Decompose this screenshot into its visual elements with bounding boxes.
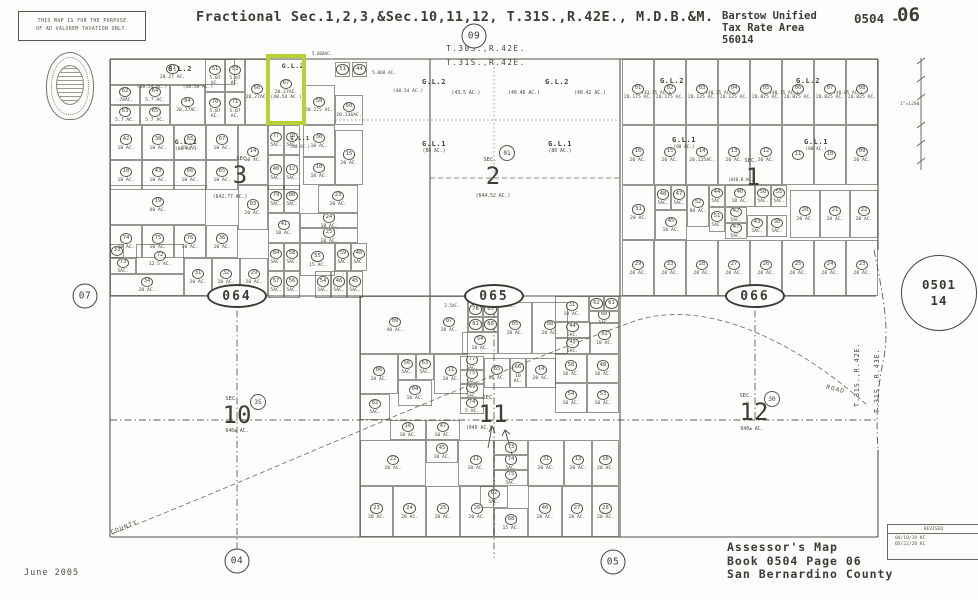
parcel-number: 56 (401, 359, 414, 369)
map-note: G.L.1 (672, 137, 696, 144)
parcel-cell: 465AC. (331, 271, 347, 298)
parcel-cell: 495AC. (460, 384, 484, 398)
parcel-number: 77 (466, 356, 479, 365)
parcel-cell: 1520 AC. (654, 125, 686, 185)
parcel-number: 77 (270, 132, 283, 142)
parcel-cell: 2520 AC. (426, 486, 460, 537)
parcel-cell: 0520 AC. (498, 302, 532, 354)
parcel-number: 53 (229, 65, 242, 75)
parcel-cell: 805AC. (284, 185, 300, 213)
parcel-cell: 1940 AC. (110, 185, 206, 225)
parcel-number: 55 (311, 251, 324, 261)
parcel-cell: 2120 AC. (820, 190, 850, 238)
parcel-acreage: 20 AC. (630, 271, 647, 276)
parcel-acreage: 20 AC. (371, 377, 388, 382)
parcel-number: 44 (353, 64, 366, 74)
parcel-acreage: 20 AC. (538, 466, 555, 471)
parcel-cell: 3420 AC. (110, 274, 184, 296)
parcel-number: 74 (466, 398, 479, 408)
parcel-acreage: 40 AC. (387, 328, 404, 333)
parcel-number: 66 (512, 362, 525, 372)
map-note: G.L.1 (548, 141, 572, 148)
parcel-number: 60 (343, 102, 356, 112)
map-note: 2.5AC. (444, 304, 459, 308)
road-marker-09: 09 (462, 24, 487, 49)
parcel-cell: 62.78AC. (110, 85, 140, 105)
parcel-number: 75 (505, 470, 518, 480)
parcel-number: 82 (369, 399, 382, 409)
parcel-acreage: 5AC. (286, 176, 297, 181)
parcel-cell: 7212.5 AC. (136, 244, 184, 274)
map-date: June 2005 (24, 568, 79, 578)
parcel-number: 24 (323, 213, 336, 223)
map-note: (40.25 AC.) (705, 92, 734, 96)
parcel-acreage: 10 AC. (489, 376, 506, 381)
parcel-number: 40 (734, 188, 747, 198)
revision-label: REVISED (888, 525, 978, 534)
map-note: G.L.2 (545, 79, 569, 86)
map-note: G.L.1 (175, 139, 198, 146)
parcel-cell: 435AC. (747, 215, 767, 237)
map-note: (40.05 AC.) (833, 92, 862, 96)
parcel-number: 58 (565, 360, 578, 370)
parcel-number: 81 (469, 319, 482, 329)
parcel-cell: 4510 AC. (426, 440, 458, 463)
parcel-number: 23 (370, 503, 383, 513)
parcel-number: 34 (141, 277, 154, 287)
road-marker-05: 05 (601, 550, 626, 575)
parcel-number: 51 (711, 211, 724, 221)
parcel-number: 45 (566, 338, 579, 348)
parcel-acreage: 5AC. (286, 260, 297, 265)
parcel-number: 42 (120, 134, 133, 144)
parcel-acreage: 80 AC. (690, 209, 707, 214)
parcel-acreage: 20 AC. (139, 288, 156, 293)
parcel-acreage: 10 AC. (563, 372, 580, 377)
parcel-number: 07 (443, 317, 456, 327)
section-numeral: 11 (479, 402, 508, 426)
parcel-cell: 4510 AC. (655, 210, 687, 240)
parcel-number: 45 (665, 217, 678, 227)
parcel-acreage: 20 AC. (385, 466, 402, 471)
road-marker-30: 30 (764, 391, 780, 407)
parcel-number: 83 (247, 199, 260, 209)
parcel-cell: 555AC. (771, 185, 787, 207)
parcel-number: 16 (402, 422, 415, 432)
parcel-cell: 2510 AC. (300, 228, 358, 243)
parcel-number: 36 (216, 233, 229, 243)
parcel-acreage: 5AC. (286, 288, 297, 293)
parcel-cell: 11 (782, 125, 814, 185)
revision-entry-2: 05/22/20 KC (895, 542, 978, 549)
parcel-number: 45 (349, 276, 362, 286)
parcel-cell: 2420 AC. (393, 486, 426, 537)
road-marker-064: 064 (207, 284, 267, 308)
parcel-number: 84 (270, 249, 283, 259)
parcel-cell: 61 (604, 296, 619, 311)
parcel-cell: 6710 AC. (206, 125, 238, 160)
parcel-cell: 825AC. (360, 394, 390, 420)
parcel-acreage: 5AC. (711, 223, 722, 228)
parcel-number: 15 (343, 149, 356, 159)
parcel-number: 40 (539, 503, 552, 513)
parcel-acreage: 20 AC. (758, 158, 775, 163)
parcel-number: 48 (657, 189, 670, 199)
road-marker-35: 35 (250, 394, 266, 410)
parcel-cell: 1010 AC. (303, 157, 335, 185)
section-numeral: 12 (740, 400, 769, 424)
parcel-number: 04 (409, 385, 422, 395)
parcel-cell: 795AC. (268, 185, 284, 213)
parcel-number: 29 (248, 269, 261, 279)
parcel-number: 48 (597, 360, 610, 370)
parcel-acreage: 5AC. (711, 199, 722, 204)
parcel-cell: 5410 AC. (555, 383, 587, 413)
parcel-number: 41 (278, 220, 291, 230)
parcel-cell: 535.07 AC. (225, 59, 245, 92)
map-note: 5.068 AC. (372, 72, 396, 76)
parcel-number: 27 (728, 260, 741, 270)
parcel-cell: 6020.136AC. (335, 95, 363, 125)
parcel-number: 65 (216, 167, 229, 177)
map-note: (644.52 AC.) (476, 195, 511, 200)
parcel-acreage: 5.7 AC. (115, 118, 135, 123)
parcel-cell: 2820 AC. (686, 240, 718, 296)
parcel-number: 57 (270, 276, 283, 286)
parcel-number: 28 (696, 260, 709, 270)
parcel-cell: 575AC. (268, 271, 284, 298)
parcel-cell: 2720 AC. (562, 486, 592, 537)
parcel-cell: 6610 AC. (510, 358, 526, 388)
parcel-acreage: 5AC. (751, 229, 762, 234)
parcel-cell: 5280 AC. (687, 185, 709, 227)
parcel-acreage: 10 AC. (118, 178, 135, 183)
parcel-acreage: 5AC. (730, 234, 741, 239)
parcel-number: 65 (149, 107, 162, 117)
parcel-acreage: 20 AC. (758, 271, 775, 276)
parcel-cell: 455AC. (347, 271, 363, 298)
parcel-number: 12 (286, 164, 299, 174)
parcel-number: 63 (119, 107, 132, 117)
parcel-cell: 2220 AC. (850, 190, 878, 238)
parcel-acreage: 20 AC. (630, 158, 647, 163)
parcel-cell: 1610 AC. (390, 420, 426, 440)
parcel-cell: 1320 AC. (564, 440, 592, 486)
parcel-number: 80 (286, 191, 299, 201)
parcel-acreage: 5AC. (337, 260, 348, 265)
parcel-cell: 2620 AC. (460, 486, 494, 537)
parcel-acreage: 20 AC. (190, 280, 207, 285)
parcel-acreage: 20 AC. (822, 271, 839, 276)
parcel-number: 27 (571, 503, 584, 513)
parcel-acreage: 20 AC. (662, 158, 679, 163)
parcel-number: 73 (117, 258, 130, 268)
parcel-number: 60 (598, 311, 611, 320)
parcel-number: 40 (270, 164, 283, 174)
parcel-number: 55 (773, 188, 786, 198)
parcel-acreage: 20 AC. (597, 466, 614, 471)
township-label-right-east: T.31S.,R.43E. (873, 348, 881, 413)
parcel-cell: 4210 AC. (110, 125, 142, 160)
map-note: (40.15 AC.) (769, 92, 798, 96)
parcel-acreage: 20 AC. (441, 328, 458, 333)
map-note: 640± AC. (225, 430, 248, 435)
parcel-number: 13 (572, 455, 585, 465)
district-name: Barstow Unified (722, 10, 817, 22)
map-note: (40.58 AC.) (183, 86, 213, 91)
county-seal (46, 52, 94, 120)
parcel-acreage: 20.27AC. (246, 95, 269, 100)
parcel-number: 65 (491, 365, 504, 375)
parcel-cell: 4110 AC. (268, 213, 300, 243)
parcel-acreage: 10 AC. (118, 146, 135, 151)
parcel-number: 11 (445, 366, 458, 376)
parcel-acreage: 10 AC. (150, 178, 167, 183)
parcel-number: 18 (120, 167, 133, 177)
parcel-acreage: 10 AC. (214, 178, 231, 183)
parcel-acreage: 20 AC. (662, 271, 679, 276)
parcel-cell: 2420 AC. (814, 240, 846, 296)
parcel-acreage: 5AC. (353, 260, 364, 265)
parcel-cell: 385AC. (767, 215, 787, 237)
parcel-acreage: 20.27AC. (176, 108, 199, 113)
parcel-number: 62 (590, 298, 603, 308)
assessor-map-sheet: THIS MAP IS FOR THE PURPOSE OF AD VALORE… (0, 0, 978, 600)
parcel-acreage: 5.07 AC. (226, 109, 244, 119)
parcel-number: 66 (251, 84, 264, 94)
parcel-acreage: 20 AC. (537, 515, 554, 520)
parcel-cell: 6815 AC. (494, 508, 528, 537)
parcel-number: 25 (323, 228, 336, 238)
parcel-cell: 1620 AC. (622, 125, 654, 185)
parcel-acreage: 20 AC. (341, 161, 358, 166)
scale-bar (917, 58, 925, 170)
parcel-number: 32 (220, 269, 233, 279)
parcel-cell: 845AC. (268, 243, 284, 271)
parcel-cell: 1420.125AC. (686, 125, 718, 185)
map-note: G.L.2 (796, 78, 820, 85)
parcel-number: 33 (111, 246, 124, 256)
parcel-cell: 1520 AC. (335, 130, 363, 185)
parcel-number: 48 (353, 249, 366, 259)
parcel-acreage: 10 AC. (564, 312, 581, 317)
parcel-number: 51 (209, 65, 222, 75)
parcel-number: 09 (389, 317, 402, 327)
parcel-cell: 735AC. (110, 258, 136, 274)
book-page-ref: 0504 - (854, 11, 899, 26)
parcel-acreage: 5.07 AC. (206, 109, 224, 119)
parcel-cell: 565AC. (398, 354, 416, 380)
parcel-number: 80 (484, 319, 497, 329)
parcel-acreage: 10 AC. (150, 146, 167, 151)
parcel-acreage: 20 AC. (854, 271, 871, 276)
parcel-number: 24 (824, 260, 837, 270)
road-marker-04: 04 (225, 549, 250, 574)
parcel-acreage: 20 AC. (533, 376, 550, 381)
parcel-number: 52 (692, 198, 705, 208)
map-note: (80 AC.) (805, 148, 826, 152)
parcel-cell: 775AC. (268, 125, 284, 155)
parcel-cell: 2320 AC. (360, 486, 393, 537)
parcel-cell: 73 (494, 440, 528, 455)
parcel-cell: 2820 AC. (592, 486, 619, 537)
tax-rate-area-code: 56014 (722, 34, 817, 46)
parcel-acreage: 20 AC. (630, 216, 647, 221)
parcel-acreage: 20.125AC. (689, 158, 714, 163)
parcel-acreage: 20 AC. (469, 515, 486, 520)
parcel-number: 76 (184, 233, 197, 243)
map-note: G.L.1 (290, 137, 310, 143)
assessor-map-footer: Assessor's Map Book 0504 Page 06 San Ber… (727, 541, 893, 582)
parcel-cell: 6620.27AC. (245, 59, 269, 125)
parcel-number: 51 (336, 64, 349, 74)
road-marker-065: 065 (464, 284, 524, 308)
parcel-number: 13 (728, 147, 741, 157)
parcel-number: 29 (632, 260, 645, 270)
map-note: 5.068AC. (312, 52, 332, 56)
map-note: (640 AC.) (466, 427, 492, 432)
parcel-number: 23 (332, 191, 345, 201)
parcel-cell: 3610 AC. (206, 225, 238, 258)
parcel-cell: 745AC. (494, 455, 528, 470)
parcel-cell: 475AC. (725, 223, 747, 239)
tax-rate-area-block: Barstow Unified Tax Rate Area 56014 (722, 10, 817, 46)
parcel-number: 43 (751, 218, 764, 228)
parcel-cell: 33 (110, 244, 124, 258)
parcel-cell: 3320 AC. (654, 240, 686, 296)
parcel-number: 61 (605, 298, 618, 308)
parcel-cell: 5820.275 AC. (303, 85, 335, 125)
parcel-cell: 655.7 AC. (140, 105, 170, 125)
parcel-number: 70 (209, 98, 222, 108)
parcel-number: 58 (313, 97, 326, 107)
parcel-number: 22 (387, 455, 400, 465)
parcel-acreage: 10 AC. (182, 178, 199, 183)
parcel-number: 75 (152, 233, 165, 243)
disclaimer-box: THIS MAP IS FOR THE PURPOSE OF AD VALORE… (18, 11, 146, 41)
parcel-number: 73 (505, 442, 518, 452)
map-note: (80 AC.) (290, 145, 310, 149)
parcel-acreage: 10 AC. (563, 401, 580, 406)
parcel-acreage: 20 AC. (790, 271, 807, 276)
map-note: (40.54 AC.) (393, 90, 423, 95)
parcel-cell: 1120 AC. (458, 440, 494, 486)
parcel-number: 22 (858, 206, 871, 216)
parcel-number: 38 (771, 218, 784, 228)
highlighted-parcel: 6720.27AC. (40.54 AC.) (269, 57, 303, 122)
township-label-right-west: T.31S.,R.42E. (853, 342, 861, 407)
parcel-acreage: 5AC. (401, 370, 412, 375)
parcel-number: 54 (474, 335, 487, 345)
parcel-number: 31 (632, 204, 645, 214)
parcel-acreage: 12.5 AC. (149, 262, 172, 267)
parcel-cell: 6510 AC. (484, 358, 510, 388)
map-note: (80 AC.) (548, 150, 571, 155)
parcel-acreage: 5AC. (286, 202, 297, 207)
parcel-number: 54 (317, 276, 330, 286)
parcel-number: 31 (192, 269, 205, 279)
parcel-cell: 8320 AC. (238, 185, 268, 230)
map-note: (40.46 AC.) (508, 92, 540, 97)
parcel-number: 43 (152, 167, 165, 177)
parcel-acreage: 10 AC. (511, 374, 525, 384)
parcel-number: 47 (673, 189, 686, 199)
parcel-number: 59 (337, 249, 350, 259)
map-note: (80 AC.) (422, 150, 445, 155)
parcel-cell: 2920 AC. (622, 240, 654, 296)
section-numeral: 2 (486, 164, 500, 188)
parcel-acreage: 5AC. (757, 199, 768, 204)
parcel-acreage: 20.27AC. (40.54 AC.) (270, 90, 302, 100)
map-note: (80 AC.) (673, 146, 694, 150)
parcel-acreage: 15 AC. (309, 263, 326, 268)
parcel-acreage: 5.7 AC. (145, 118, 165, 123)
sheet-number: 06 (897, 4, 920, 26)
map-note: G.L.1 (422, 141, 446, 148)
map-note: (80 AC.) (175, 148, 197, 153)
parcel-acreage: 20 AC. (797, 217, 814, 222)
parcel-cell: 3120 AC. (622, 185, 655, 240)
parcel-number: 72 (154, 251, 167, 261)
parcel-number: 28 (599, 503, 612, 513)
parcel-cell: 585AC. (284, 243, 300, 271)
parcel-number: 06 (373, 366, 386, 376)
parcel-acreage: 5AC. (270, 202, 281, 207)
township-label-south: T.31S.,R.42E. (446, 58, 526, 67)
parcel-acreage: 10 AC. (400, 433, 417, 438)
parcel-cell: 455AC. (555, 338, 590, 354)
parcel-acreage: 5AC. (657, 201, 668, 206)
parcel-acreage: 5AC. (317, 288, 328, 293)
parcel-acreage: 20 AC. (570, 466, 587, 471)
parcel-cell: 3120 AC. (184, 258, 212, 296)
parcel-acreage: 20 AC. (245, 211, 262, 216)
road-marker-01: 01 (499, 145, 515, 161)
parcel-cell: 51 (335, 62, 350, 77)
parcel-cell: 2320 AC. (318, 185, 358, 213)
parcel-number: 24 (403, 503, 416, 513)
parcel-cell: 1420 AC. (526, 358, 556, 388)
parcel-acreage: 20 AC. (330, 202, 347, 207)
parcel-cell: 595AC. (335, 243, 351, 271)
parcel-number: 47 (437, 422, 450, 432)
adjacent-sheet-circle: 0501 14 (901, 255, 977, 331)
footer-line1: Assessor's Map (727, 541, 893, 555)
parcel-acreage: 5 AC. (465, 409, 479, 414)
parcel-number: 23 (856, 260, 869, 270)
parcel-acreage: 10 AC. (276, 231, 293, 236)
parcel-cell: 545AC. (315, 271, 331, 298)
parcel-cell: 5310 AC. (587, 383, 619, 413)
section-numeral: 10 (223, 403, 252, 427)
parcel-acreage: 20 AC. (443, 377, 460, 382)
map-note: (43.35 AC.) (641, 92, 670, 96)
county-seal-emblem (56, 65, 84, 105)
parcel-number: 33 (664, 260, 677, 270)
parcel-acreage: 10 AC. (407, 396, 424, 401)
parcel-acreage: 5AC. (369, 410, 380, 415)
parcel-number: 10 (313, 163, 326, 173)
parcel-cell: 81 (468, 317, 483, 332)
parcel-cell: 4810 AC. (587, 354, 619, 383)
map-note: G.L.2 (422, 79, 446, 86)
parcel-acreage: 10 AC. (311, 174, 328, 179)
parcel-acreage: 20.136AC. (336, 113, 361, 118)
parcel-number: 47 (730, 223, 743, 233)
parcel-cell: 635AC. (416, 354, 434, 380)
parcel-acreage: 5AC. (270, 143, 281, 148)
parcel-acreage: 5AC. (771, 229, 782, 234)
